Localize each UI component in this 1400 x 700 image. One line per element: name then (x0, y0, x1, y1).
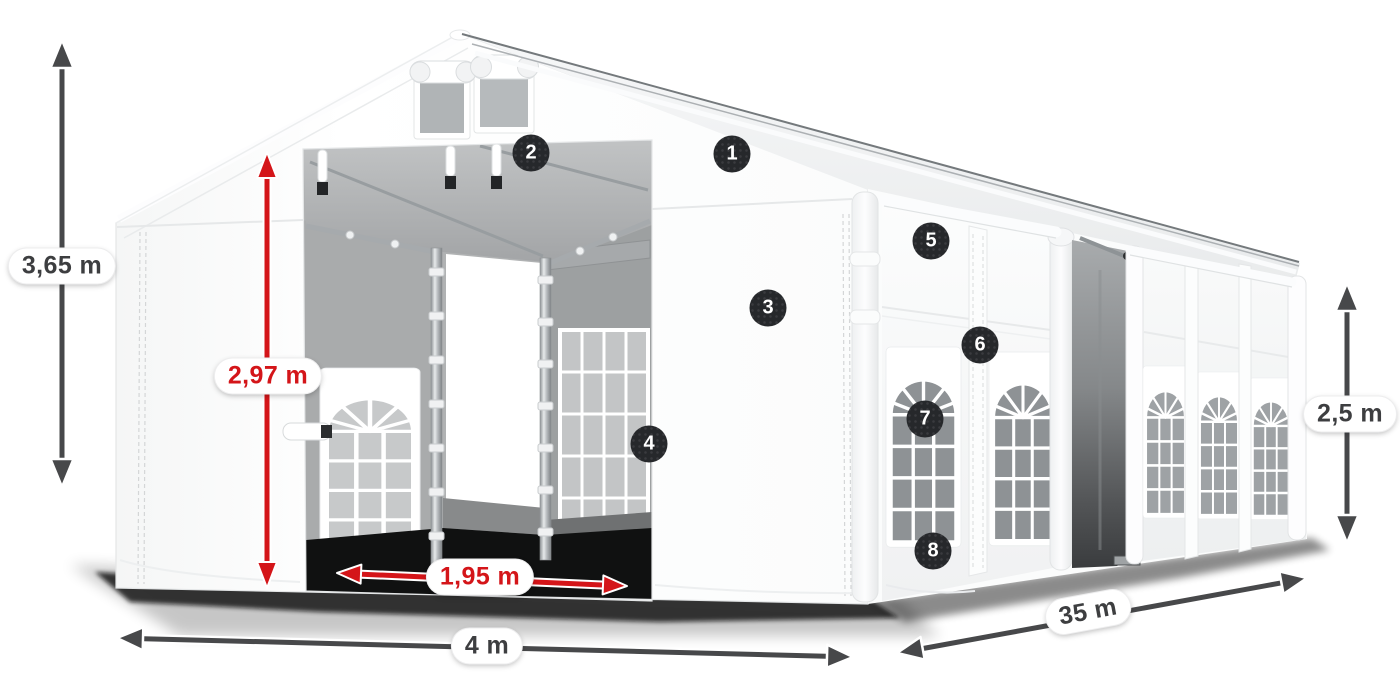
callout-badge-7: 7 (907, 401, 944, 438)
side-window (886, 347, 961, 547)
corner-pillar (850, 192, 880, 602)
callout-badge-1: 1 (714, 136, 751, 173)
side-window (1250, 378, 1292, 520)
callout-badge-8: 8 (915, 533, 952, 570)
dim-label-total-height: 3,65 m (9, 249, 115, 284)
callout-badge-4: 4 (631, 426, 668, 463)
callout-badge-6: 6 (962, 327, 999, 364)
gable-window-left (420, 81, 464, 133)
door-tie-handle (283, 423, 332, 440)
callout-badge-3: 3 (750, 290, 787, 327)
gable-windows (410, 55, 539, 139)
dim-label-side-height: 2,5 m (1304, 397, 1396, 432)
tent-interior (300, 138, 656, 604)
side-window (989, 352, 1057, 546)
tent-illustration (0, 0, 1400, 700)
side-window (1197, 372, 1241, 519)
dim-label-width: 4 m (452, 629, 522, 664)
dim-label-entrance-height: 2,97 m (215, 359, 321, 394)
tent-dimension-diagram: 3,65 m 2,97 m 1,95 m 4 m 35 m 2,5 m 1 2 … (0, 0, 1400, 700)
callout-badge-5: 5 (913, 223, 950, 260)
dim-label-entrance-width: 1,95 m (427, 560, 533, 595)
side-window (1143, 366, 1188, 518)
callout-badge-2: 2 (513, 135, 550, 172)
